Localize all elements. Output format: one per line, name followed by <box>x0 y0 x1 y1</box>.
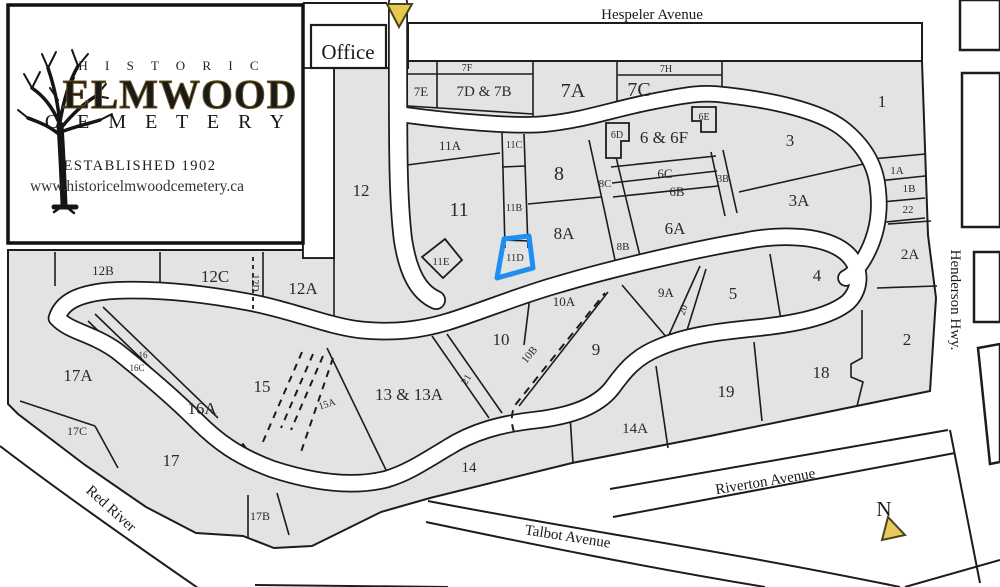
section-label-8c: 8C <box>599 178 612 190</box>
section-label-11b: 11B <box>506 203 523 214</box>
office-column-cell <box>303 68 334 258</box>
section-label-16c: 16C <box>129 363 144 373</box>
section-label-7h: 7H <box>660 64 672 75</box>
section-label-8b: 8B <box>617 241 630 253</box>
section-label-12: 12 <box>353 181 370 200</box>
section-label-19: 19 <box>718 382 735 401</box>
section-label-3b: 3B <box>717 174 729 185</box>
section-label-10: 10 <box>493 330 510 349</box>
section-label-14: 14 <box>462 460 478 476</box>
section-label-7f: 7F <box>462 63 473 74</box>
section-label-5: 5 <box>729 284 738 303</box>
section-label-12c: 12C <box>201 267 229 286</box>
section-label-16a: 16A <box>187 399 217 418</box>
corner-line <box>905 560 1000 587</box>
north-compass: N <box>876 497 905 540</box>
talbot-road-lines <box>426 501 900 587</box>
section-label-2a: 2A <box>901 247 920 263</box>
section-label-11a: 11A <box>439 138 462 153</box>
hespeler-road-strip <box>408 23 922 61</box>
section-label-16: 16 <box>139 350 149 360</box>
section-label-11: 11 <box>449 199 468 221</box>
office-label: Office <box>321 40 374 64</box>
section-label-14a: 14A <box>622 421 648 437</box>
section-label-7d-7b: 7D & 7B <box>456 84 511 100</box>
section-label-7a: 7A <box>561 80 586 102</box>
section-label-4: 4 <box>813 266 822 285</box>
henderson-south-line <box>950 430 980 583</box>
street-label-henderson-hwy-: Henderson Hwy. <box>947 250 963 351</box>
section-label-1b: 1B <box>903 183 916 195</box>
section-label-3: 3 <box>786 131 795 150</box>
section-label-12a: 12A <box>288 279 318 298</box>
section-label-12d: 12D <box>249 274 260 291</box>
section-label-12b: 12B <box>92 263 114 278</box>
section-label-11d: 11D <box>506 253 524 264</box>
section-label-7e: 7E <box>414 84 429 99</box>
section-label-17a: 17A <box>63 366 93 385</box>
buildings <box>960 0 1000 464</box>
section-label-6c: 6C <box>657 166 672 181</box>
section-label-8a: 8A <box>554 224 576 243</box>
section-label-6e: 6E <box>698 112 709 123</box>
section-label-7c: 7C <box>627 79 650 101</box>
section-label-15: 15 <box>254 377 271 396</box>
section-label-10a: 10A <box>553 294 576 309</box>
logo-website: www.historicelmwoodcemetery.ca <box>30 178 244 195</box>
section-label-13-13a: 13 & 13A <box>375 385 444 404</box>
section-label-9a: 9A <box>658 285 675 300</box>
section-label-6b: 6B <box>669 184 685 199</box>
section-label-6a: 6A <box>665 219 687 238</box>
logo-cemetery: C E M E T E R Y <box>45 111 291 133</box>
section-label-3a: 3A <box>789 191 811 210</box>
section-label-11e: 11E <box>432 256 450 268</box>
section-label-6d: 6D <box>611 130 623 141</box>
cemetery-map-page: Office N H I S T O R I C ELMWOOD C E M E… <box>0 0 1000 587</box>
section-label-17: 17 <box>163 451 181 470</box>
logo-box: H I S T O R I C ELMWOOD C E M E T E R Y … <box>8 5 303 243</box>
section-label-1a: 1A <box>890 165 904 177</box>
section-label-6-6f: 6 & 6F <box>640 128 688 147</box>
street-label-hespeler-avenue: Hespeler Avenue <box>601 7 703 23</box>
section-label-1: 1 <box>878 92 887 111</box>
logo-established: ESTABLISHED 1902 <box>64 158 217 174</box>
section-label-17c: 17C <box>67 424 87 438</box>
section-label-8: 8 <box>554 163 564 185</box>
section-label-17b: 17B <box>250 509 270 523</box>
section-label-9: 9 <box>592 340 601 359</box>
section-label-18: 18 <box>813 363 830 382</box>
cemetery-map: Office N H I S T O R I C ELMWOOD C E M E… <box>0 0 1000 587</box>
section-label-22: 22 <box>903 204 914 216</box>
section-label-11c: 11C <box>506 140 523 151</box>
section-label-2: 2 <box>903 330 912 349</box>
street-label-riverton-avenue: Riverton Avenue <box>714 466 817 498</box>
